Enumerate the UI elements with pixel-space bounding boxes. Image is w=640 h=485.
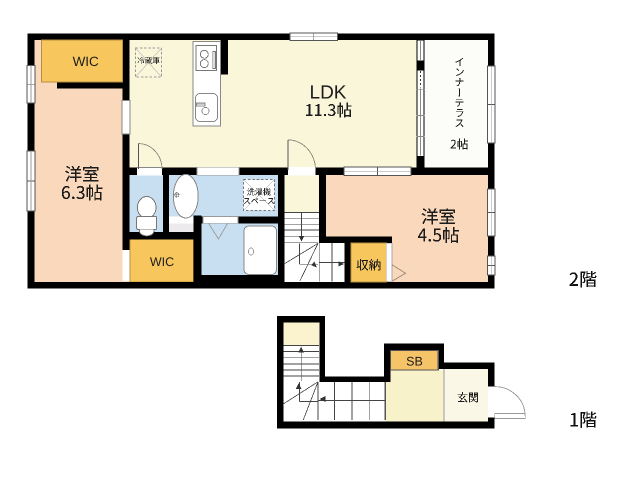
svg-text:LDK: LDK	[310, 83, 347, 104]
svg-text:WIC: WIC	[73, 54, 99, 69]
svg-text:WIC: WIC	[150, 255, 174, 269]
svg-text:SB: SB	[406, 355, 423, 369]
